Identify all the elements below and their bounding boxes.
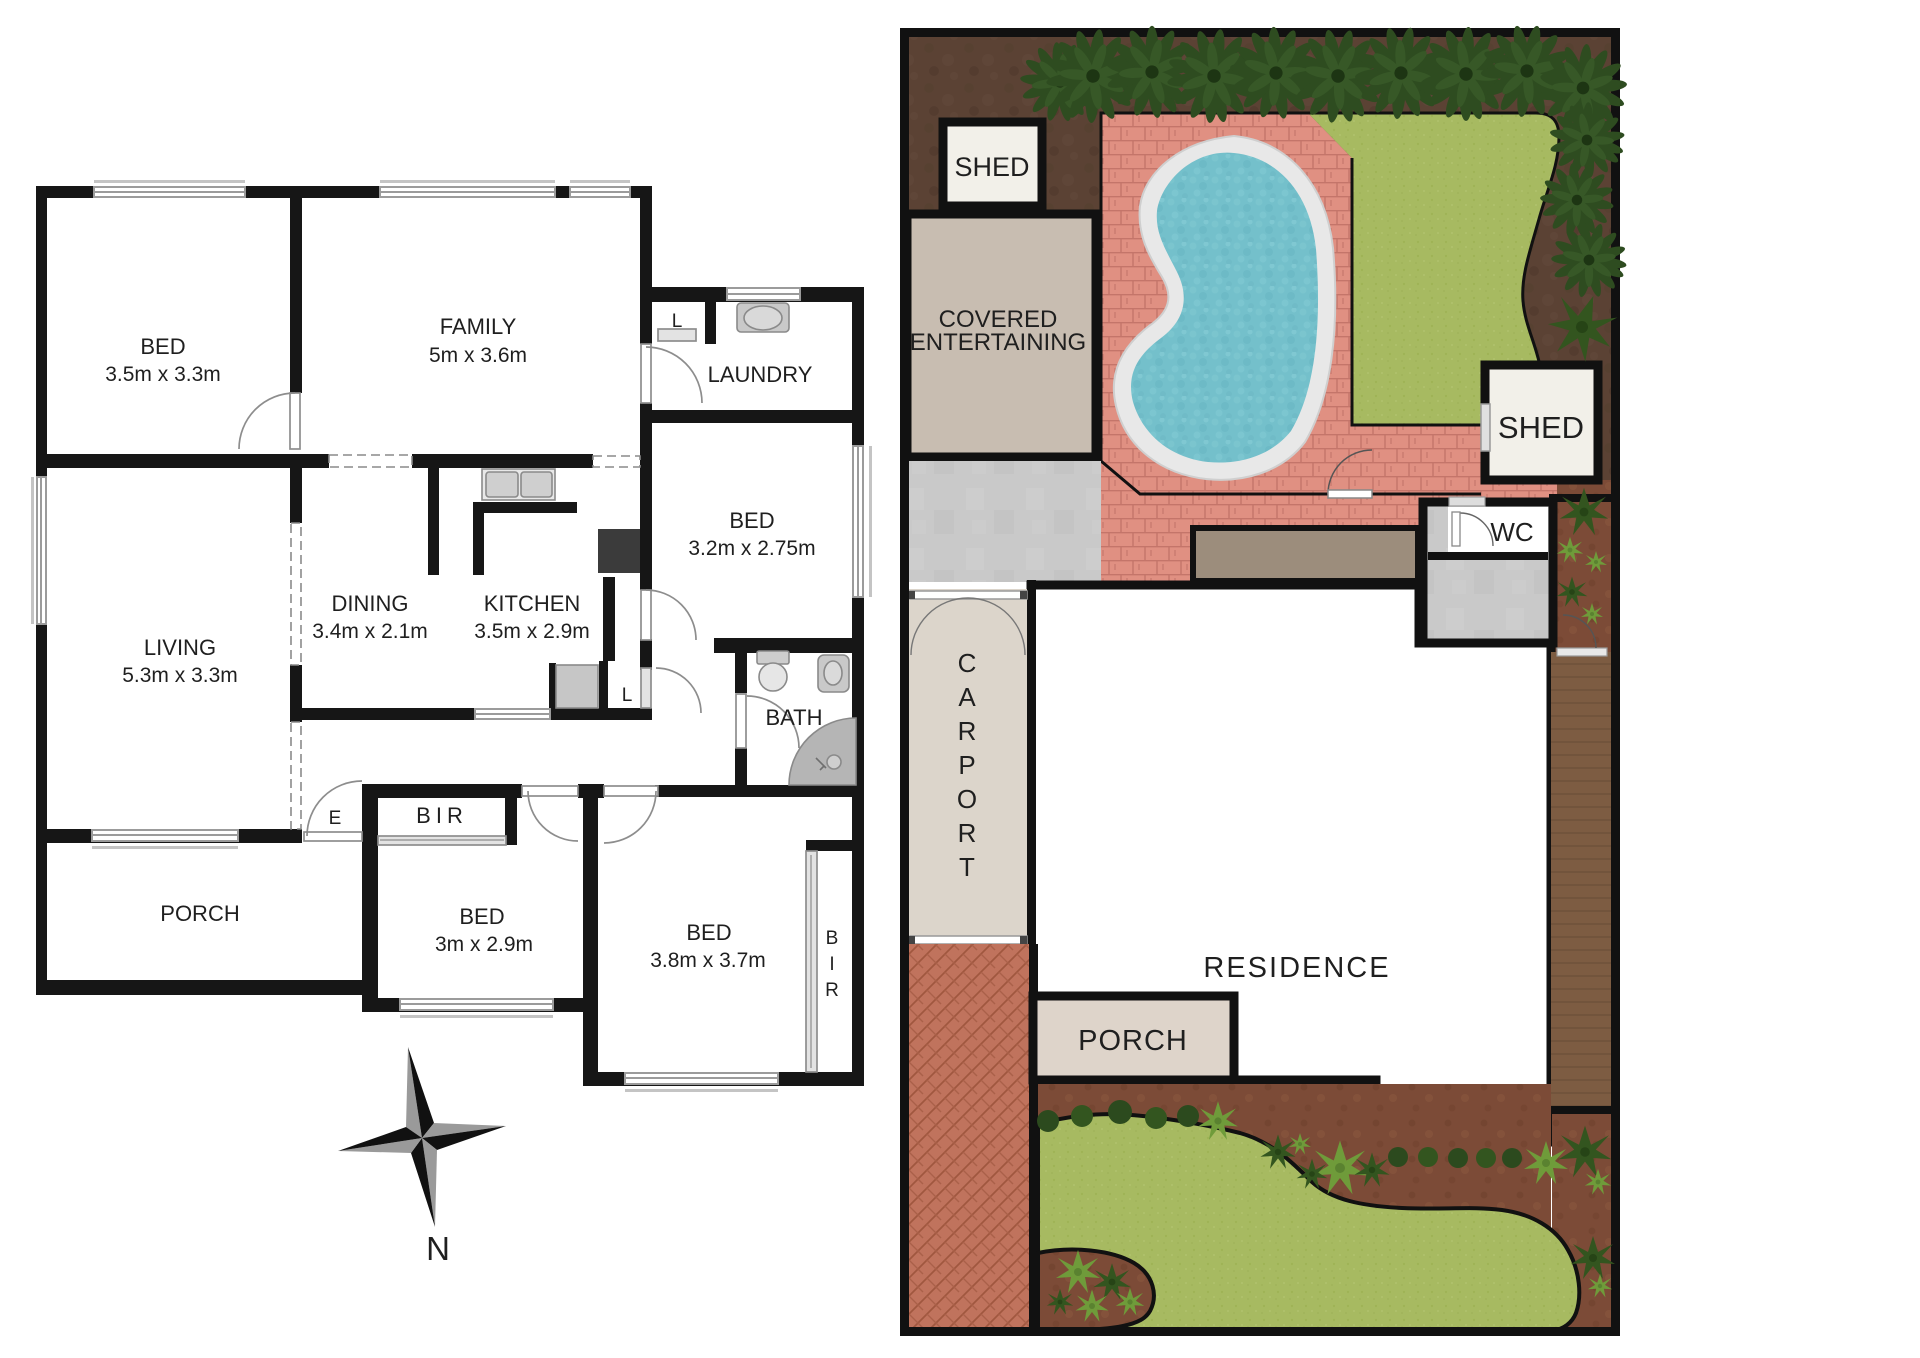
svg-text:L: L (622, 685, 633, 706)
svg-text:SHED: SHED (1498, 410, 1584, 445)
svg-text:PORCH: PORCH (160, 901, 239, 926)
svg-text:5.3m x 3.3m: 5.3m x 3.3m (122, 664, 238, 687)
svg-text:A: A (958, 682, 976, 712)
svg-text:E: E (329, 808, 342, 829)
svg-text:R: R (958, 716, 977, 746)
svg-text:3m x 2.9m: 3m x 2.9m (435, 933, 533, 956)
svg-text:BED: BED (459, 904, 504, 929)
svg-text:P: P (958, 750, 975, 780)
svg-text:ENTERTAINING: ENTERTAINING (910, 329, 1086, 356)
svg-text:R: R (958, 818, 977, 848)
svg-text:B: B (826, 928, 839, 949)
svg-text:5m x 3.6m: 5m x 3.6m (429, 344, 527, 367)
svg-text:N: N (426, 1230, 450, 1267)
svg-text:R: R (825, 980, 839, 1001)
svg-text:3.8m x 3.7m: 3.8m x 3.7m (650, 949, 766, 972)
svg-text:C: C (958, 648, 977, 678)
svg-text:BIR: BIR (416, 803, 468, 828)
svg-text:T: T (959, 852, 975, 882)
svg-text:PORCH: PORCH (1078, 1025, 1188, 1057)
svg-text:BED: BED (140, 334, 185, 359)
svg-text:3.5m x 3.3m: 3.5m x 3.3m (105, 363, 221, 386)
svg-text:BED: BED (729, 508, 774, 533)
svg-text:SHED: SHED (954, 152, 1029, 182)
svg-text:KITCHEN: KITCHEN (484, 591, 581, 616)
svg-text:LIVING: LIVING (144, 635, 216, 660)
svg-text:LAUNDRY: LAUNDRY (708, 362, 813, 387)
svg-text:3.4m x 2.1m: 3.4m x 2.1m (312, 620, 428, 643)
svg-text:I: I (829, 954, 834, 975)
svg-text:FAMILY: FAMILY (440, 314, 517, 339)
svg-text:DINING: DINING (332, 591, 409, 616)
svg-text:BED: BED (686, 920, 731, 945)
svg-text:3.2m x 2.75m: 3.2m x 2.75m (688, 537, 815, 560)
svg-text:3.5m x 2.9m: 3.5m x 2.9m (474, 620, 590, 643)
svg-text:O: O (957, 784, 977, 814)
svg-text:BATH: BATH (765, 705, 822, 730)
svg-text:WC: WC (1490, 517, 1533, 547)
svg-text:RESIDENCE: RESIDENCE (1203, 952, 1390, 984)
svg-text:L: L (672, 311, 683, 332)
